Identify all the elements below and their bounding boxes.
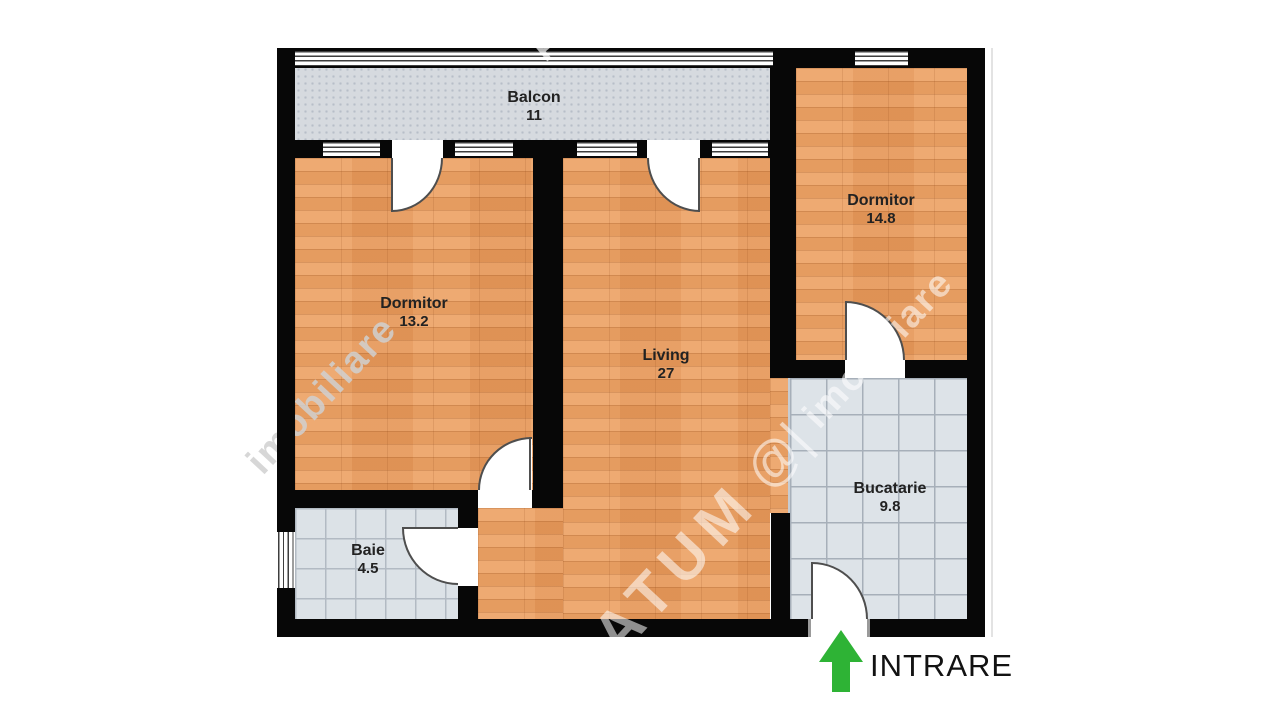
kitchen-name: Bucatarie (810, 480, 970, 498)
wall-separator-bedroom2 (770, 48, 796, 378)
living-balcony-door-opening (647, 140, 700, 158)
living-label: Living 27 (586, 347, 746, 382)
wall-bedroom1-living (533, 158, 563, 508)
living-balcony-window-1 (577, 142, 637, 156)
balcony-area: 11 (454, 107, 614, 124)
bathroom-area: 4.5 (288, 560, 448, 577)
bedroom2-area: 14.8 (801, 210, 961, 227)
bedroom2-label: Dormitor 14.8 (801, 192, 961, 227)
living-balcony-door-leaf (698, 158, 700, 212)
balcony-label: Balcon 11 (454, 89, 614, 124)
bathroom-label: Baie 4.5 (288, 542, 448, 577)
living-area: 27 (586, 365, 746, 382)
entrance-arrow-icon (819, 630, 863, 692)
hallway-floor (478, 508, 563, 619)
living-name: Living (586, 347, 746, 365)
wall-bathroom-right-lower (458, 586, 478, 619)
outer-shadow-line (991, 48, 993, 637)
bathroom-door-leaf (402, 527, 458, 529)
kitchen-area: 9.8 (810, 498, 970, 515)
balcony-name: Balcon (454, 89, 614, 107)
entrance-label: INTRARE (870, 648, 1013, 684)
bedroom2-door-leaf (845, 301, 847, 360)
bathroom-door-opening (458, 528, 478, 586)
entrance-arrow-shape (819, 630, 863, 692)
wall-kitchen-left (771, 513, 790, 619)
bedroom1-door-leaf (529, 437, 531, 490)
bedroom1-name: Dormitor (334, 295, 494, 313)
living-balcony-window-2 (712, 142, 768, 156)
living-kitchen-passage-floor (770, 378, 790, 513)
wall-right (967, 48, 985, 637)
bedroom2-door-opening (845, 360, 905, 378)
kitchen-label: Bucatarie 9.8 (810, 480, 970, 515)
entrance-door-leaf (811, 562, 813, 619)
balcony-exterior-window (295, 51, 773, 66)
kitchen-threshold-line (788, 378, 790, 513)
bedroom2-window (855, 51, 908, 66)
bedroom2-name: Dormitor (801, 192, 961, 210)
entrance-jamb-left (808, 619, 811, 637)
bedroom1-balcony-door-opening (392, 140, 443, 158)
bedroom1-door-opening (478, 490, 532, 508)
bedroom1-balcony-door-leaf (391, 158, 393, 212)
living-floor (563, 158, 770, 619)
bedroom1-label: Dormitor 13.2 (334, 295, 494, 330)
bedroom1-balcony-window-2 (455, 142, 513, 156)
wall-left-upper (277, 48, 295, 532)
floor-plan: imobiliare Balcon 11 Dormitor 13 (0, 0, 1280, 701)
wall-bathroom-right-upper (458, 508, 478, 528)
entrance-jamb-right (867, 619, 870, 637)
wall-bottom (277, 619, 985, 637)
bathroom-name: Baie (288, 542, 448, 560)
bedroom1-area: 13.2 (334, 313, 494, 330)
bedroom1-balcony-window-1 (323, 142, 380, 156)
